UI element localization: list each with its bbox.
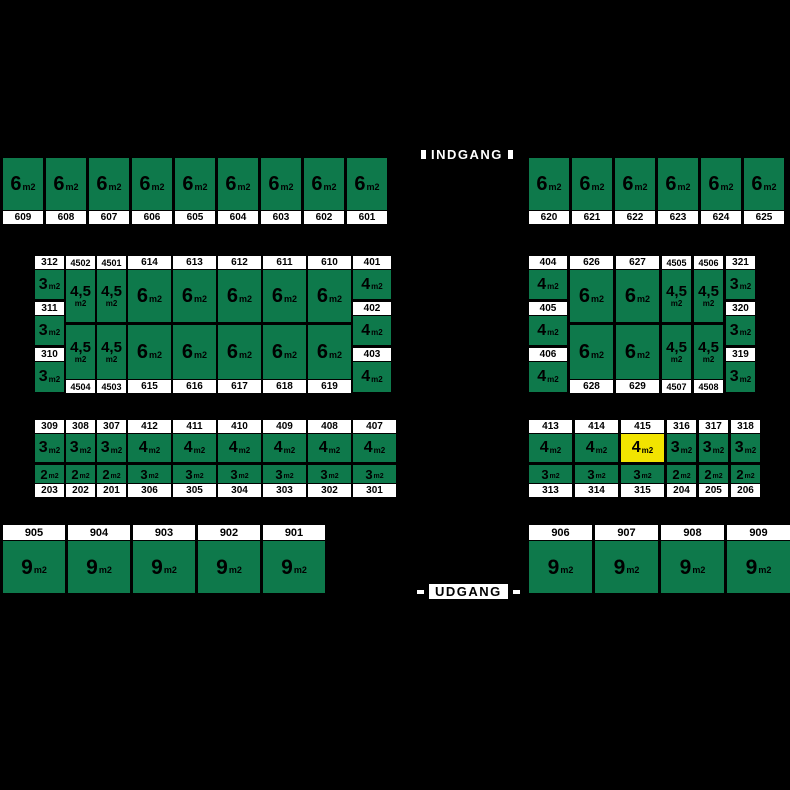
stall-size-unit: m2 (635, 183, 648, 192)
stall-size-unit: m2 (637, 295, 650, 304)
stall-size-value: 6 (139, 174, 150, 194)
stall-310[interactable]: 3m2 (35, 362, 64, 392)
stall-624[interactable]: 6m2 (701, 158, 741, 210)
stall-size-value: 3 (39, 369, 48, 385)
stall-size-unit: m2 (371, 329, 383, 337)
stall-318[interactable]: 3m2 (731, 434, 760, 462)
stall-603[interactable]: 6m2 (261, 158, 301, 210)
stall-305[interactable]: 3m2 (173, 465, 216, 483)
stall-label-313: 313 (529, 484, 572, 497)
stall-label-614: 614 (128, 256, 171, 269)
top-left-row: 6m26096m26086m26076m26066m26056m26046m26… (3, 158, 387, 224)
stall-label-907: 907 (595, 525, 658, 540)
stall-size-value: 6 (622, 174, 633, 194)
stall-size-value: 4 (537, 369, 546, 385)
stall-401[interactable]: 4m2 (353, 270, 391, 299)
stall-size-value: 4 (361, 277, 370, 293)
stall-label-205: 205 (699, 484, 728, 497)
stall-size-value: 2 (672, 468, 679, 481)
stall-column: 45054,5m24,5m24507 (662, 256, 691, 393)
stall-size-unit: m2 (23, 183, 36, 192)
stall-size-unit: m2 (111, 447, 123, 455)
stall-label-406: 406 (529, 348, 567, 361)
stall-315[interactable]: 3m2 (621, 465, 664, 483)
stall-4508[interactable]: 4,5m2 (694, 325, 723, 379)
stall-label-411: 411 (173, 420, 216, 433)
stall-label-321: 321 (726, 256, 755, 269)
stall-309[interactable]: 3m2 (35, 434, 64, 462)
stall-label-306: 306 (128, 484, 171, 497)
stall-size-value: 4,5 (101, 340, 122, 355)
stall-403[interactable]: 4m2 (353, 362, 391, 392)
stall-size-unit: m2 (550, 447, 562, 455)
stall-label-312: 312 (35, 256, 64, 269)
stall-label-316: 316 (667, 420, 696, 433)
stall-size-value: 4 (537, 323, 546, 339)
stall-size-unit: m2 (681, 473, 691, 480)
stall-label-318: 318 (731, 420, 760, 433)
stall-414[interactable]: 4m2 (575, 434, 618, 462)
stall-612[interactable]: 6m2 (218, 270, 261, 322)
stall-412[interactable]: 4m2 (128, 434, 171, 462)
stall-label-906: 906 (529, 525, 592, 540)
stall-column: 4114m23m2305 (173, 420, 216, 497)
entrance-sign: INDGANG (421, 148, 513, 161)
stall-904[interactable]: 9m2 (68, 541, 130, 593)
stall-label-305: 305 (173, 484, 216, 497)
stall-size-unit: m2 (284, 473, 294, 480)
stall-size-unit: m2 (109, 183, 122, 192)
stall-label-603: 603 (261, 211, 301, 224)
stall-size-value: 9 (216, 557, 228, 578)
stall-size-value: 4 (364, 440, 373, 456)
stall-label-621: 621 (572, 211, 612, 224)
stall-size-unit: m2 (596, 447, 608, 455)
stall-label-613: 613 (173, 256, 216, 269)
stall-901[interactable]: 9m2 (263, 541, 325, 593)
stall-label-320: 320 (726, 302, 755, 315)
stall-column: 3183m22m2206 (731, 420, 760, 497)
stall-613[interactable]: 6m2 (173, 270, 216, 322)
stall-614[interactable]: 6m2 (128, 270, 171, 322)
stall-label-622: 622 (615, 211, 655, 224)
stall-column: 6m2603 (261, 158, 301, 224)
stall-column: 9029m2 (198, 525, 260, 593)
stall-column: 45014,5m24,5m24503 (97, 256, 126, 393)
stall-622[interactable]: 6m2 (615, 158, 655, 210)
stall-label-4507: 4507 (662, 380, 691, 393)
stall-size-value: 4 (139, 440, 148, 456)
stall-409[interactable]: 4m2 (263, 434, 306, 462)
stall-4506[interactable]: 4,5m2 (694, 270, 723, 322)
stall-size-value: 4 (361, 323, 370, 339)
stall-size-unit: m2 (195, 183, 208, 192)
stall-size-unit: m2 (239, 295, 252, 304)
stall-316[interactable]: 3m2 (667, 434, 696, 462)
stall-907[interactable]: 9m2 (595, 541, 658, 593)
stall-size-value: 3 (320, 468, 327, 481)
stall-size-unit: m2 (547, 329, 559, 337)
stall-610[interactable]: 6m2 (308, 270, 351, 322)
stall-408[interactable]: 4m2 (308, 434, 351, 462)
stall-column: 4084m23m2302 (308, 420, 351, 497)
stall-size-value: 9 (548, 557, 560, 578)
stall-4505[interactable]: 4,5m2 (662, 270, 691, 322)
stall-size-unit: m2 (284, 295, 297, 304)
stall-size-value: 6 (227, 286, 238, 306)
stall-306[interactable]: 3m2 (128, 465, 171, 483)
stall-size-unit: m2 (329, 295, 342, 304)
stall-313[interactable]: 3m2 (529, 465, 572, 483)
stall-205[interactable]: 2m2 (699, 465, 728, 483)
stall-size-unit: m2 (149, 351, 162, 360)
stall-405[interactable]: 4m2 (529, 316, 567, 345)
stall-size-unit: m2 (764, 183, 777, 192)
stall-413[interactable]: 4m2 (529, 434, 572, 462)
stall-201[interactable]: 2m2 (97, 465, 126, 483)
stall-204[interactable]: 2m2 (667, 465, 696, 483)
stall-size-value: 9 (680, 557, 692, 578)
stall-label-619: 619 (308, 380, 351, 393)
stall-size-unit: m2 (239, 351, 252, 360)
stall-311[interactable]: 3m2 (35, 316, 64, 345)
stall-size-value: 6 (227, 342, 238, 362)
stall-label-4508: 4508 (694, 380, 723, 393)
stall-label-301: 301 (353, 484, 396, 497)
stall-4504[interactable]: 4,5m2 (66, 325, 95, 379)
stall-size-unit: m2 (329, 473, 339, 480)
stall-label-412: 412 (128, 420, 171, 433)
stall-size-unit: m2 (194, 295, 207, 304)
stall-size-value: 6 (317, 342, 328, 362)
stall-623[interactable]: 6m2 (658, 158, 698, 210)
stall-size-unit: m2 (591, 351, 604, 360)
stall-label-4504: 4504 (66, 380, 95, 393)
stall-410[interactable]: 4m2 (218, 434, 261, 462)
stall-column: 45064,5m24,5m24508 (694, 256, 723, 393)
stall-4503[interactable]: 4,5m2 (97, 325, 126, 379)
stall-size-unit: m2 (721, 183, 734, 192)
stall-size-value: 3 (140, 468, 147, 481)
stall-column: 6m2622 (615, 158, 655, 224)
stall-411[interactable]: 4m2 (173, 434, 216, 462)
stall-size-unit: m2 (149, 447, 161, 455)
stall-4502[interactable]: 4,5m2 (66, 270, 95, 322)
stall-625[interactable]: 6m2 (744, 158, 784, 210)
stall-label-402: 402 (353, 302, 391, 315)
stall-size-unit: m2 (66, 183, 79, 192)
stall-size-unit: m2 (49, 329, 61, 337)
stall-label-618: 618 (263, 380, 306, 393)
stall-column: 6m2606 (132, 158, 172, 224)
stall-size-unit: m2 (642, 447, 654, 455)
stall-size-unit: m2 (284, 447, 296, 455)
stall-size-value: 6 (751, 174, 762, 194)
stall-size-unit: m2 (678, 183, 691, 192)
stall-label-317: 317 (699, 420, 728, 433)
stall-column: 6126m26m2617 (218, 256, 261, 393)
stall-size-value: 3 (587, 468, 594, 481)
stall-size-value: 4,5 (70, 340, 91, 355)
stall-label-203: 203 (35, 484, 64, 497)
stall-size-unit: m2 (596, 473, 606, 480)
stall-size-unit: m2 (49, 447, 61, 455)
stall-617[interactable]: 6m2 (218, 325, 261, 379)
stall-616[interactable]: 6m2 (173, 325, 216, 379)
stall-601[interactable]: 6m2 (347, 158, 387, 210)
stall-column: 6m2624 (701, 158, 741, 224)
stall-402[interactable]: 4m2 (353, 316, 391, 345)
stall-size-unit: m2 (194, 351, 207, 360)
stall-map: INDGANG UDGANG 6m26096m26086m26076m26066… (0, 0, 790, 790)
stall-size-unit: m2 (149, 295, 162, 304)
stall-628[interactable]: 6m2 (570, 325, 613, 379)
stall-size-unit: m2 (713, 447, 725, 455)
stall-column: 4104m23m2304 (218, 420, 261, 497)
stall-size-value: 4 (229, 440, 238, 456)
stall-size-value: 3 (735, 440, 744, 456)
stall-label-202: 202 (66, 484, 95, 497)
stall-size-value: 6 (317, 286, 328, 306)
stall-629[interactable]: 6m2 (616, 325, 659, 379)
stall-609[interactable]: 6m2 (3, 158, 43, 210)
stall-size-unit: m2 (194, 473, 204, 480)
stall-903[interactable]: 9m2 (133, 541, 195, 593)
stall-size-unit: m2 (106, 300, 118, 308)
stall-406[interactable]: 4m2 (529, 362, 567, 392)
exit-marker-right-icon (513, 590, 520, 594)
entrance-marker-right-icon (508, 150, 513, 159)
stall-column: 4094m23m2303 (263, 420, 306, 497)
stall-size-unit: m2 (324, 183, 337, 192)
stall-602[interactable]: 6m2 (304, 158, 344, 210)
stall-size-unit: m2 (681, 447, 693, 455)
stall-size-unit: m2 (111, 473, 121, 480)
stall-size-unit: m2 (637, 351, 650, 360)
stall-label-628: 628 (570, 380, 613, 393)
stall-606[interactable]: 6m2 (132, 158, 172, 210)
stall-label-625: 625 (744, 211, 784, 224)
stall-size-value: 6 (182, 286, 193, 306)
stall-size-unit: m2 (740, 329, 752, 337)
stall-label-626: 626 (570, 256, 613, 269)
stall-column: 6106m26m2619 (308, 256, 351, 393)
stall-size-value: 6 (272, 342, 283, 362)
stall-909[interactable]: 9m2 (727, 541, 790, 593)
stall-column: 4144m23m2314 (575, 420, 618, 497)
exit-marker-left-icon (417, 590, 424, 594)
stall-size-unit: m2 (374, 447, 386, 455)
stall-label-410: 410 (218, 420, 261, 433)
stall-column: 9049m2 (68, 525, 130, 593)
stall-611[interactable]: 6m2 (263, 270, 306, 322)
stall-column: 4124m23m2306 (128, 420, 171, 497)
stall-size-value: 4,5 (666, 284, 687, 299)
stall-304[interactable]: 3m2 (218, 465, 261, 483)
low-right-block: 4134m23m23134144m23m23144154m23m23153163… (529, 420, 760, 497)
stall-415-highlighted[interactable]: 4m2 (621, 434, 664, 462)
stall-604[interactable]: 6m2 (218, 158, 258, 210)
stall-303[interactable]: 3m2 (263, 465, 306, 483)
stall-320[interactable]: 3m2 (726, 316, 755, 345)
stall-size-value: 2 (704, 468, 711, 481)
stall-203[interactable]: 2m2 (35, 465, 64, 483)
stall-size-unit: m2 (549, 183, 562, 192)
stall-size-value: 4 (184, 440, 193, 456)
stall-size-value: 2 (102, 468, 109, 481)
stall-608[interactable]: 6m2 (46, 158, 86, 210)
stall-size-value: 2 (40, 468, 47, 481)
stall-label-302: 302 (308, 484, 351, 497)
stall-column: 6m2623 (658, 158, 698, 224)
stall-size-value: 4,5 (101, 284, 122, 299)
stall-620[interactable]: 6m2 (529, 158, 569, 210)
stall-302[interactable]: 3m2 (308, 465, 351, 483)
stall-size-value: 6 (625, 286, 636, 306)
stall-label-409: 409 (263, 420, 306, 433)
stall-label-629: 629 (616, 380, 659, 393)
stall-4501[interactable]: 4,5m2 (97, 270, 126, 322)
stall-label-4502: 4502 (66, 256, 95, 269)
stall-size-value: 3 (39, 323, 48, 339)
stall-column: 6m2601 (347, 158, 387, 224)
stall-column: 9069m2 (529, 525, 592, 593)
stall-314[interactable]: 3m2 (575, 465, 618, 483)
stall-size-unit: m2 (152, 183, 165, 192)
stall-size-unit: m2 (49, 473, 59, 480)
stall-621[interactable]: 6m2 (572, 158, 612, 210)
stall-size-unit: m2 (367, 183, 380, 192)
stall-size-unit: m2 (591, 295, 604, 304)
stall-size-value: 4,5 (698, 340, 719, 355)
stall-column: 4134m23m2313 (529, 420, 572, 497)
stall-label-909: 909 (727, 525, 790, 540)
stall-size-value: 3 (275, 468, 282, 481)
stall-312[interactable]: 3m2 (35, 270, 64, 299)
stall-size-value: 4 (319, 440, 328, 456)
stall-size-value: 3 (633, 468, 640, 481)
stall-size-unit: m2 (671, 356, 683, 364)
stall-label-414: 414 (575, 420, 618, 433)
exit-sign: UDGANG (417, 584, 520, 599)
stall-308[interactable]: 3m2 (66, 434, 95, 462)
stall-column: 4154m23m2315 (621, 420, 664, 497)
stall-404[interactable]: 4m2 (529, 270, 567, 299)
stall-206[interactable]: 2m2 (731, 465, 760, 483)
stall-407[interactable]: 4m2 (353, 434, 396, 462)
stall-307[interactable]: 3m2 (97, 434, 126, 462)
stall-size-value: 6 (53, 174, 64, 194)
stall-label-601: 601 (347, 211, 387, 224)
stall-size-value: 4 (361, 369, 370, 385)
top-right-row: 6m26206m26216m26226m26236m26246m2625 (529, 158, 784, 224)
stall-label-314: 314 (575, 484, 618, 497)
stall-319[interactable]: 3m2 (726, 362, 755, 392)
stall-size-unit: m2 (294, 566, 307, 575)
stall-618[interactable]: 6m2 (263, 325, 306, 379)
stall-size-value: 3 (70, 440, 79, 456)
stall-605[interactable]: 6m2 (175, 158, 215, 210)
stall-size-value: 6 (137, 342, 148, 362)
stall-label-4505: 4505 (662, 256, 691, 269)
stall-column: 6146m26m2615 (128, 256, 171, 393)
stall-label-611: 611 (263, 256, 306, 269)
stall-301[interactable]: 3m2 (353, 465, 396, 483)
stall-size-value: 3 (230, 468, 237, 481)
stall-label-627: 627 (616, 256, 659, 269)
stall-4507[interactable]: 4,5m2 (662, 325, 691, 379)
stall-size-unit: m2 (80, 473, 90, 480)
stall-317[interactable]: 3m2 (699, 434, 728, 462)
stall-label-405: 405 (529, 302, 567, 315)
stall-size-unit: m2 (740, 376, 752, 384)
stall-size-unit: m2 (238, 183, 251, 192)
stall-size-unit: m2 (592, 183, 605, 192)
stall-label-902: 902 (198, 525, 260, 540)
stall-column: 6136m26m2616 (173, 256, 216, 393)
stall-column: 4044m24054m24064m2 (529, 256, 567, 392)
stall-size-unit: m2 (49, 376, 61, 384)
stall-column: 6m2621 (572, 158, 612, 224)
stall-626[interactable]: 6m2 (570, 270, 613, 322)
stall-size-value: 6 (96, 174, 107, 194)
stall-size-value: 9 (614, 557, 626, 578)
stall-size-value: 3 (730, 323, 739, 339)
stall-column: 6266m26m2628 (570, 256, 613, 393)
stall-label-206: 206 (731, 484, 760, 497)
stall-size-value: 6 (137, 286, 148, 306)
stall-321[interactable]: 3m2 (726, 270, 755, 299)
stall-615[interactable]: 6m2 (128, 325, 171, 379)
stall-size-value: 6 (625, 342, 636, 362)
stall-size-unit: m2 (713, 473, 723, 480)
stall-column: 4014m24024m24034m2 (353, 256, 391, 392)
stall-label-623: 623 (658, 211, 698, 224)
stall-label-616: 616 (173, 380, 216, 393)
stall-902[interactable]: 9m2 (198, 541, 260, 593)
stall-607[interactable]: 6m2 (89, 158, 129, 210)
stall-column: 9059m2 (3, 525, 65, 593)
stall-label-610: 610 (308, 256, 351, 269)
stall-label-612: 612 (218, 256, 261, 269)
stall-size-value: 4 (540, 440, 549, 456)
bottom-right-row: 9069m29079m29089m29099m2 (529, 525, 790, 593)
stall-size-value: 9 (21, 557, 33, 578)
stall-905[interactable]: 9m2 (3, 541, 65, 593)
stall-size-value: 6 (182, 342, 193, 362)
stall-906[interactable]: 9m2 (529, 541, 592, 593)
stall-size-unit: m2 (371, 376, 383, 384)
stall-size-value: 4 (274, 440, 283, 456)
stall-size-value: 4 (632, 440, 641, 456)
stall-627[interactable]: 6m2 (616, 270, 659, 322)
stall-908[interactable]: 9m2 (661, 541, 724, 593)
stall-size-unit: m2 (547, 283, 559, 291)
stall-column: 6m2604 (218, 158, 258, 224)
stall-size-value: 6 (354, 174, 365, 194)
stall-label-309: 309 (35, 420, 64, 433)
stall-size-value: 3 (365, 468, 372, 481)
stall-label-315: 315 (621, 484, 664, 497)
stall-619[interactable]: 6m2 (308, 325, 351, 379)
stall-label-617: 617 (218, 380, 261, 393)
stall-size-value: 6 (10, 174, 21, 194)
stall-label-605: 605 (175, 211, 215, 224)
stall-202[interactable]: 2m2 (66, 465, 95, 483)
stall-size-unit: m2 (34, 566, 47, 575)
stall-size-value: 6 (536, 174, 547, 194)
stall-size-value: 6 (579, 174, 590, 194)
